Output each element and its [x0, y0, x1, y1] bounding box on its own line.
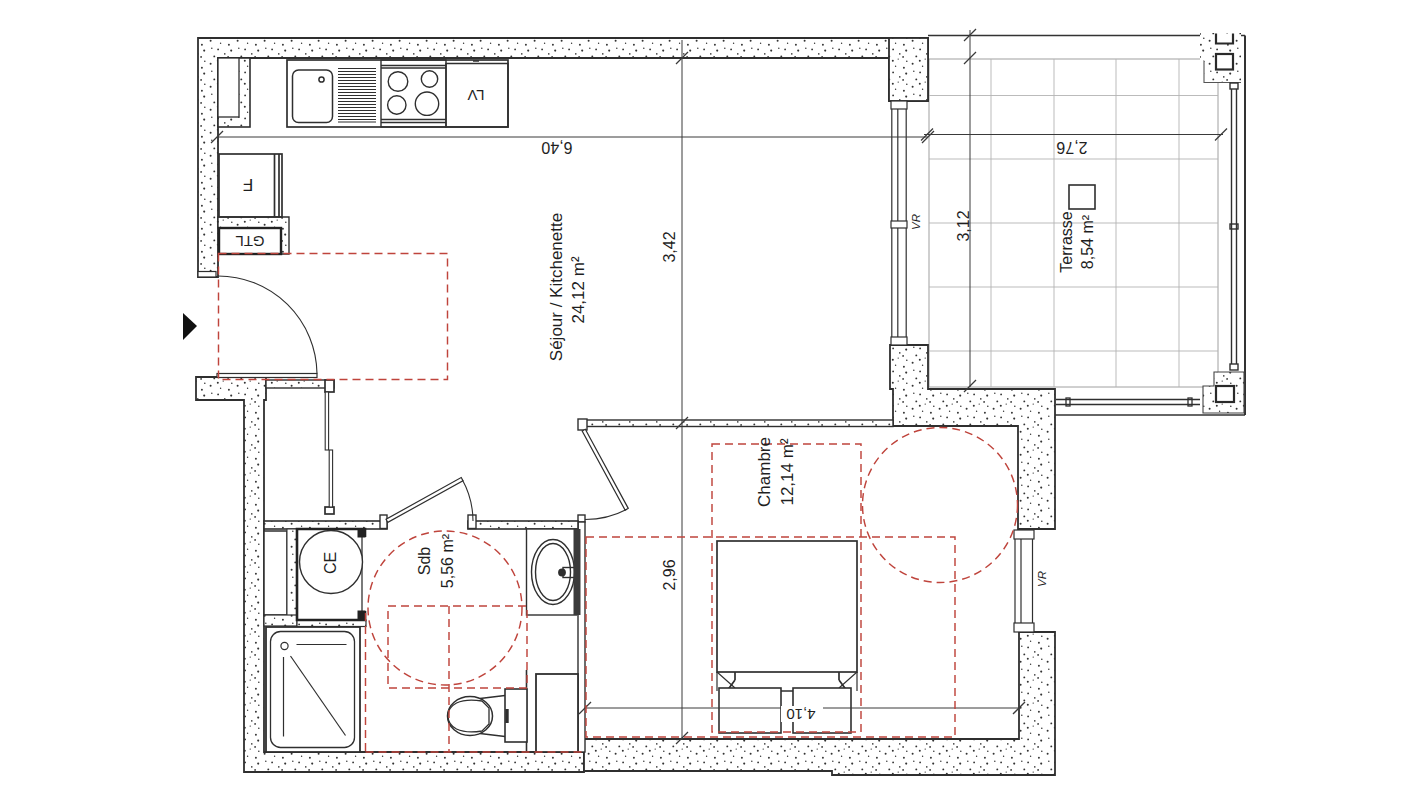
svg-text:Chambre: Chambre [755, 437, 774, 507]
svg-text:2,76: 2,76 [1056, 139, 1087, 156]
svg-text:Terrasse: Terrasse [1058, 211, 1075, 272]
svg-text:12,14 m²: 12,14 m² [778, 438, 797, 505]
svg-text:8,54 m²: 8,54 m² [1079, 214, 1096, 269]
svg-text:F: F [243, 175, 253, 194]
svg-text:Séjour / Kitchenette: Séjour / Kitchenette [547, 213, 566, 361]
svg-text:6,40: 6,40 [541, 139, 572, 156]
svg-text:2,96: 2,96 [661, 559, 678, 590]
svg-text:3,12: 3,12 [955, 210, 972, 241]
svg-text:24,12 m²: 24,12 m² [569, 256, 588, 323]
svg-text:VR: VR [910, 214, 922, 230]
svg-text:5,56 m²: 5,56 m² [439, 533, 456, 588]
svg-text:3,42: 3,42 [661, 231, 678, 262]
svg-text:4,10: 4,10 [786, 706, 815, 723]
svg-text:Sdb: Sdb [416, 547, 433, 576]
svg-text:LV: LV [467, 87, 484, 104]
svg-text:VR: VR [1036, 571, 1048, 587]
svg-text:GTL: GTL [235, 233, 264, 250]
svg-text:CE: CE [322, 552, 339, 574]
